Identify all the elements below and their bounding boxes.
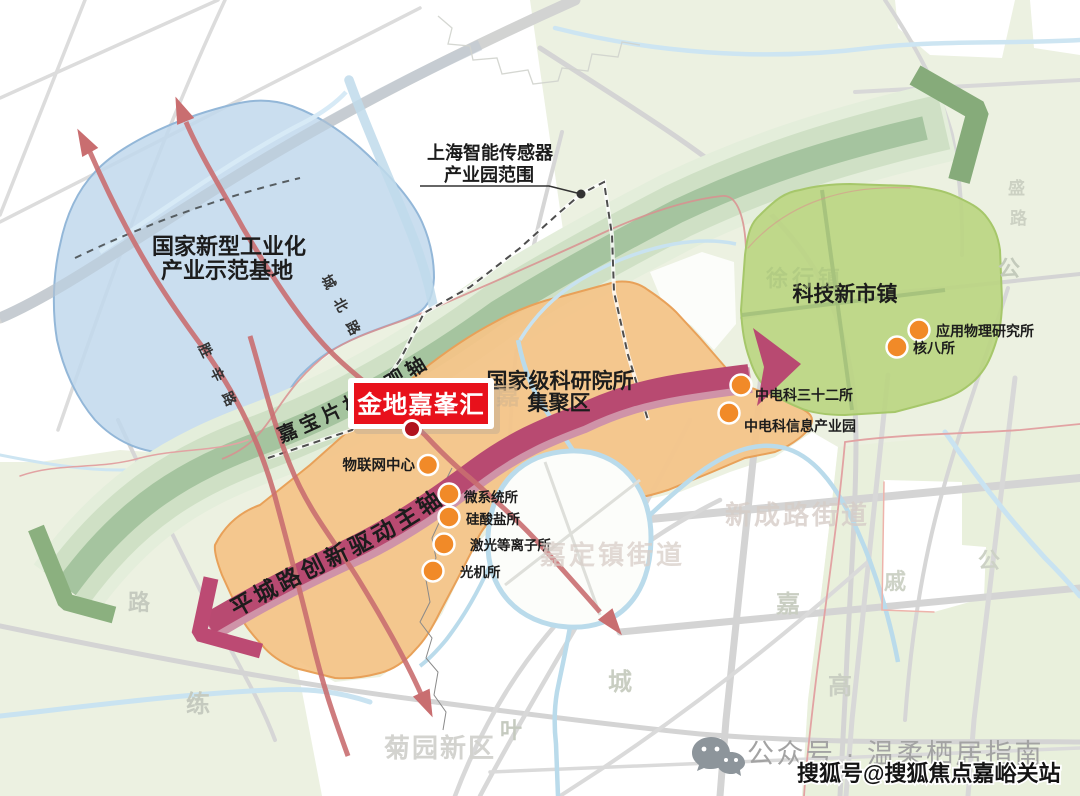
svg-text:叶: 叶 bbox=[500, 718, 522, 743]
svg-text:路: 路 bbox=[128, 590, 151, 615]
svg-text:核八所: 核八所 bbox=[913, 340, 955, 356]
svg-text:集聚区: 集聚区 bbox=[527, 391, 591, 415]
svg-text:徐行镇: 徐行镇 bbox=[765, 266, 844, 291]
svg-text:城: 城 bbox=[608, 668, 632, 696]
svg-text:公: 公 bbox=[978, 548, 1000, 573]
svg-text:搜狐号@搜狐焦点嘉峪关站: 搜狐号@搜狐焦点嘉峪关站 bbox=[797, 761, 1060, 786]
svg-text:嘉定镇街道: 嘉定镇街道 bbox=[540, 540, 685, 570]
svg-text:高: 高 bbox=[828, 672, 852, 700]
svg-text:光机所: 光机所 bbox=[459, 564, 501, 580]
svg-text:路: 路 bbox=[1010, 208, 1028, 228]
svg-text:物联网中心: 物联网中心 bbox=[343, 456, 416, 474]
svg-text:盛: 盛 bbox=[1008, 178, 1025, 198]
svg-text:硅酸盐所: 硅酸盐所 bbox=[466, 511, 520, 527]
svg-text:戚: 戚 bbox=[884, 569, 906, 594]
svg-text:中电科信息产业园: 中电科信息产业园 bbox=[744, 418, 856, 434]
svg-text:微系统所: 微系统所 bbox=[463, 489, 518, 505]
svg-text:中电科三十二所: 中电科三十二所 bbox=[755, 387, 853, 403]
svg-text:嘉: 嘉 bbox=[776, 591, 800, 618]
svg-text:菊园新区: 菊园新区 bbox=[384, 733, 496, 763]
svg-text:金地嘉峯汇: 金地嘉峯汇 bbox=[356, 390, 485, 419]
svg-text:产业园范围: 产业园范围 bbox=[444, 164, 534, 185]
svg-text:国家新型工业化: 国家新型工业化 bbox=[152, 234, 306, 259]
svg-text:新成路街道: 新成路街道 bbox=[725, 500, 870, 530]
svg-text:产业示范基地: 产业示范基地 bbox=[161, 258, 293, 283]
svg-text:公: 公 bbox=[998, 256, 1020, 281]
svg-text:练: 练 bbox=[186, 690, 210, 718]
svg-text:上海智能传感器: 上海智能传感器 bbox=[427, 142, 554, 163]
svg-text:应用物理研究所: 应用物理研究所 bbox=[936, 323, 1034, 339]
